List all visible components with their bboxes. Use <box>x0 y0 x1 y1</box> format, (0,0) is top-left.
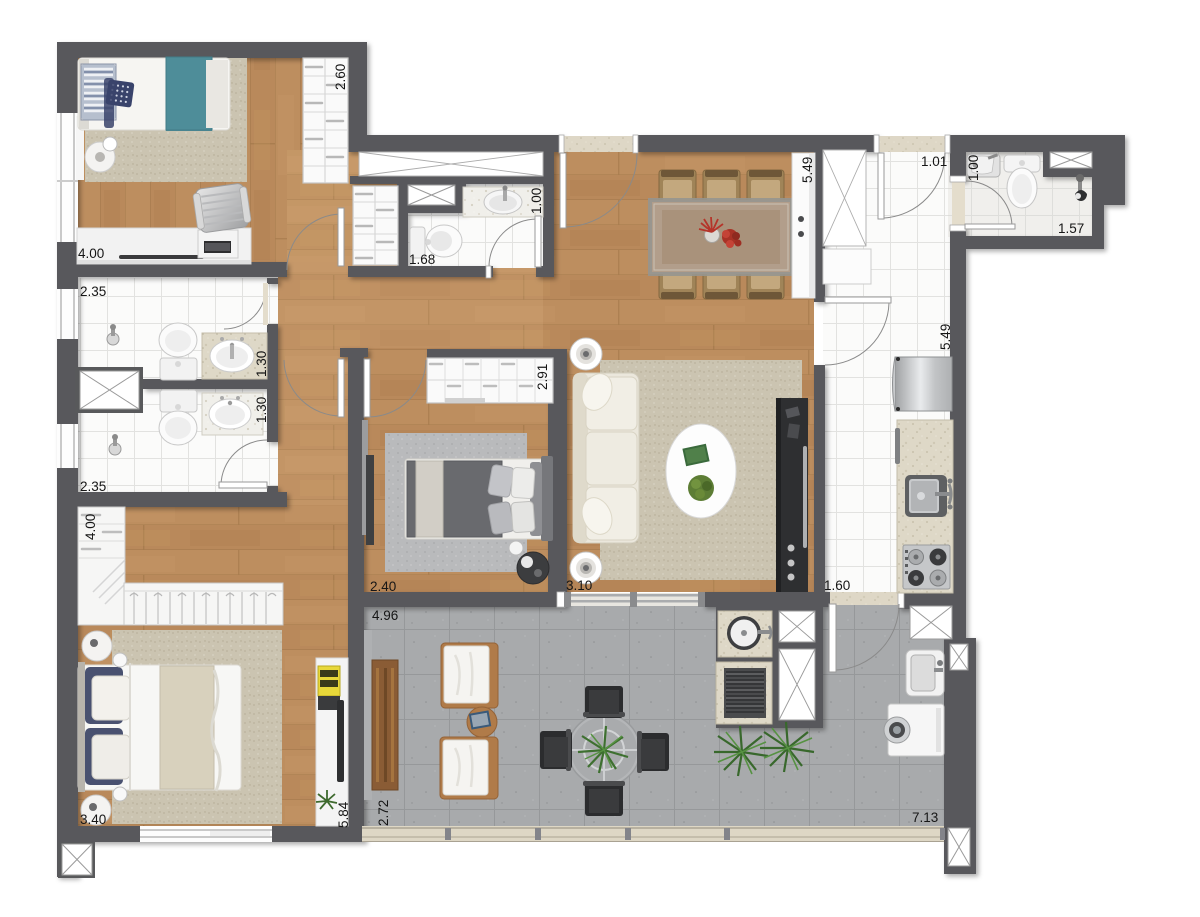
svg-text:7.13: 7.13 <box>912 810 938 825</box>
svg-text:1.30: 1.30 <box>254 397 269 423</box>
svg-text:2.35: 2.35 <box>80 284 106 299</box>
svg-text:1.30: 1.30 <box>254 351 269 377</box>
svg-text:1.01: 1.01 <box>921 154 947 169</box>
svg-text:4.00: 4.00 <box>83 514 98 540</box>
svg-text:3.40: 3.40 <box>80 812 106 827</box>
svg-text:5.49: 5.49 <box>938 324 953 350</box>
svg-text:2.35: 2.35 <box>80 479 106 494</box>
svg-text:2.60: 2.60 <box>333 64 348 90</box>
svg-text:4.96: 4.96 <box>372 608 398 623</box>
svg-text:2.40: 2.40 <box>370 579 396 594</box>
svg-text:1.60: 1.60 <box>824 578 850 593</box>
svg-text:4.00: 4.00 <box>78 246 104 261</box>
svg-text:1.57: 1.57 <box>1058 221 1084 236</box>
svg-text:2.91: 2.91 <box>535 364 550 390</box>
svg-text:1.68: 1.68 <box>409 252 435 267</box>
svg-text:1.00: 1.00 <box>529 188 544 214</box>
svg-text:1.00: 1.00 <box>966 155 981 181</box>
svg-text:5.49: 5.49 <box>800 157 815 183</box>
svg-text:2.72: 2.72 <box>376 800 391 826</box>
svg-text:3.10: 3.10 <box>566 578 592 593</box>
svg-text:5.84: 5.84 <box>336 801 351 828</box>
